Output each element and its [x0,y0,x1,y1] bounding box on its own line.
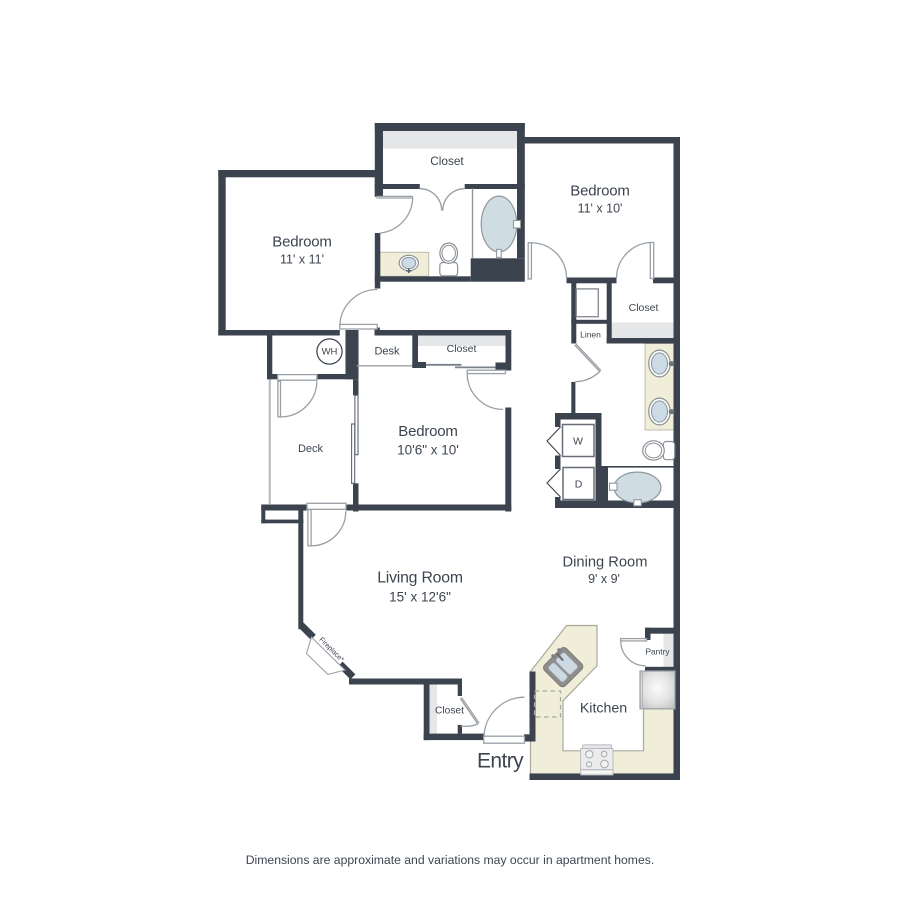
svg-text:Bedroom: Bedroom [570,183,629,200]
svg-text:Living Room: Living Room [377,570,463,587]
svg-text:10'6" x 10': 10'6" x 10' [397,443,459,458]
svg-text:Dimensions are approximate and: Dimensions are approximate and variation… [246,853,654,867]
svg-text:Bedroom: Bedroom [398,423,457,440]
svg-text:W: W [573,436,583,448]
svg-text:Closet: Closet [629,302,659,314]
svg-text:Closet: Closet [430,154,464,168]
svg-text:WH: WH [322,347,338,358]
svg-text:Kitchen: Kitchen [580,701,627,717]
svg-text:Pantry: Pantry [646,647,671,657]
svg-text:Bedroom: Bedroom [272,234,331,251]
svg-text:Deck: Deck [298,443,324,455]
svg-text:Closet: Closet [435,706,464,717]
svg-text:Desk: Desk [374,346,400,358]
svg-text:Entry: Entry [477,750,524,773]
svg-text:Linen: Linen [580,330,601,340]
svg-text:Closet: Closet [447,343,477,355]
svg-text:15' x 12'6": 15' x 12'6" [389,590,451,605]
svg-text:11' x 11': 11' x 11' [280,253,324,267]
svg-text:11' x 10': 11' x 10' [578,202,623,216]
svg-text:9' x 9': 9' x 9' [588,572,620,586]
svg-text:D: D [575,479,583,491]
svg-text:Dining Room: Dining Room [563,555,648,571]
